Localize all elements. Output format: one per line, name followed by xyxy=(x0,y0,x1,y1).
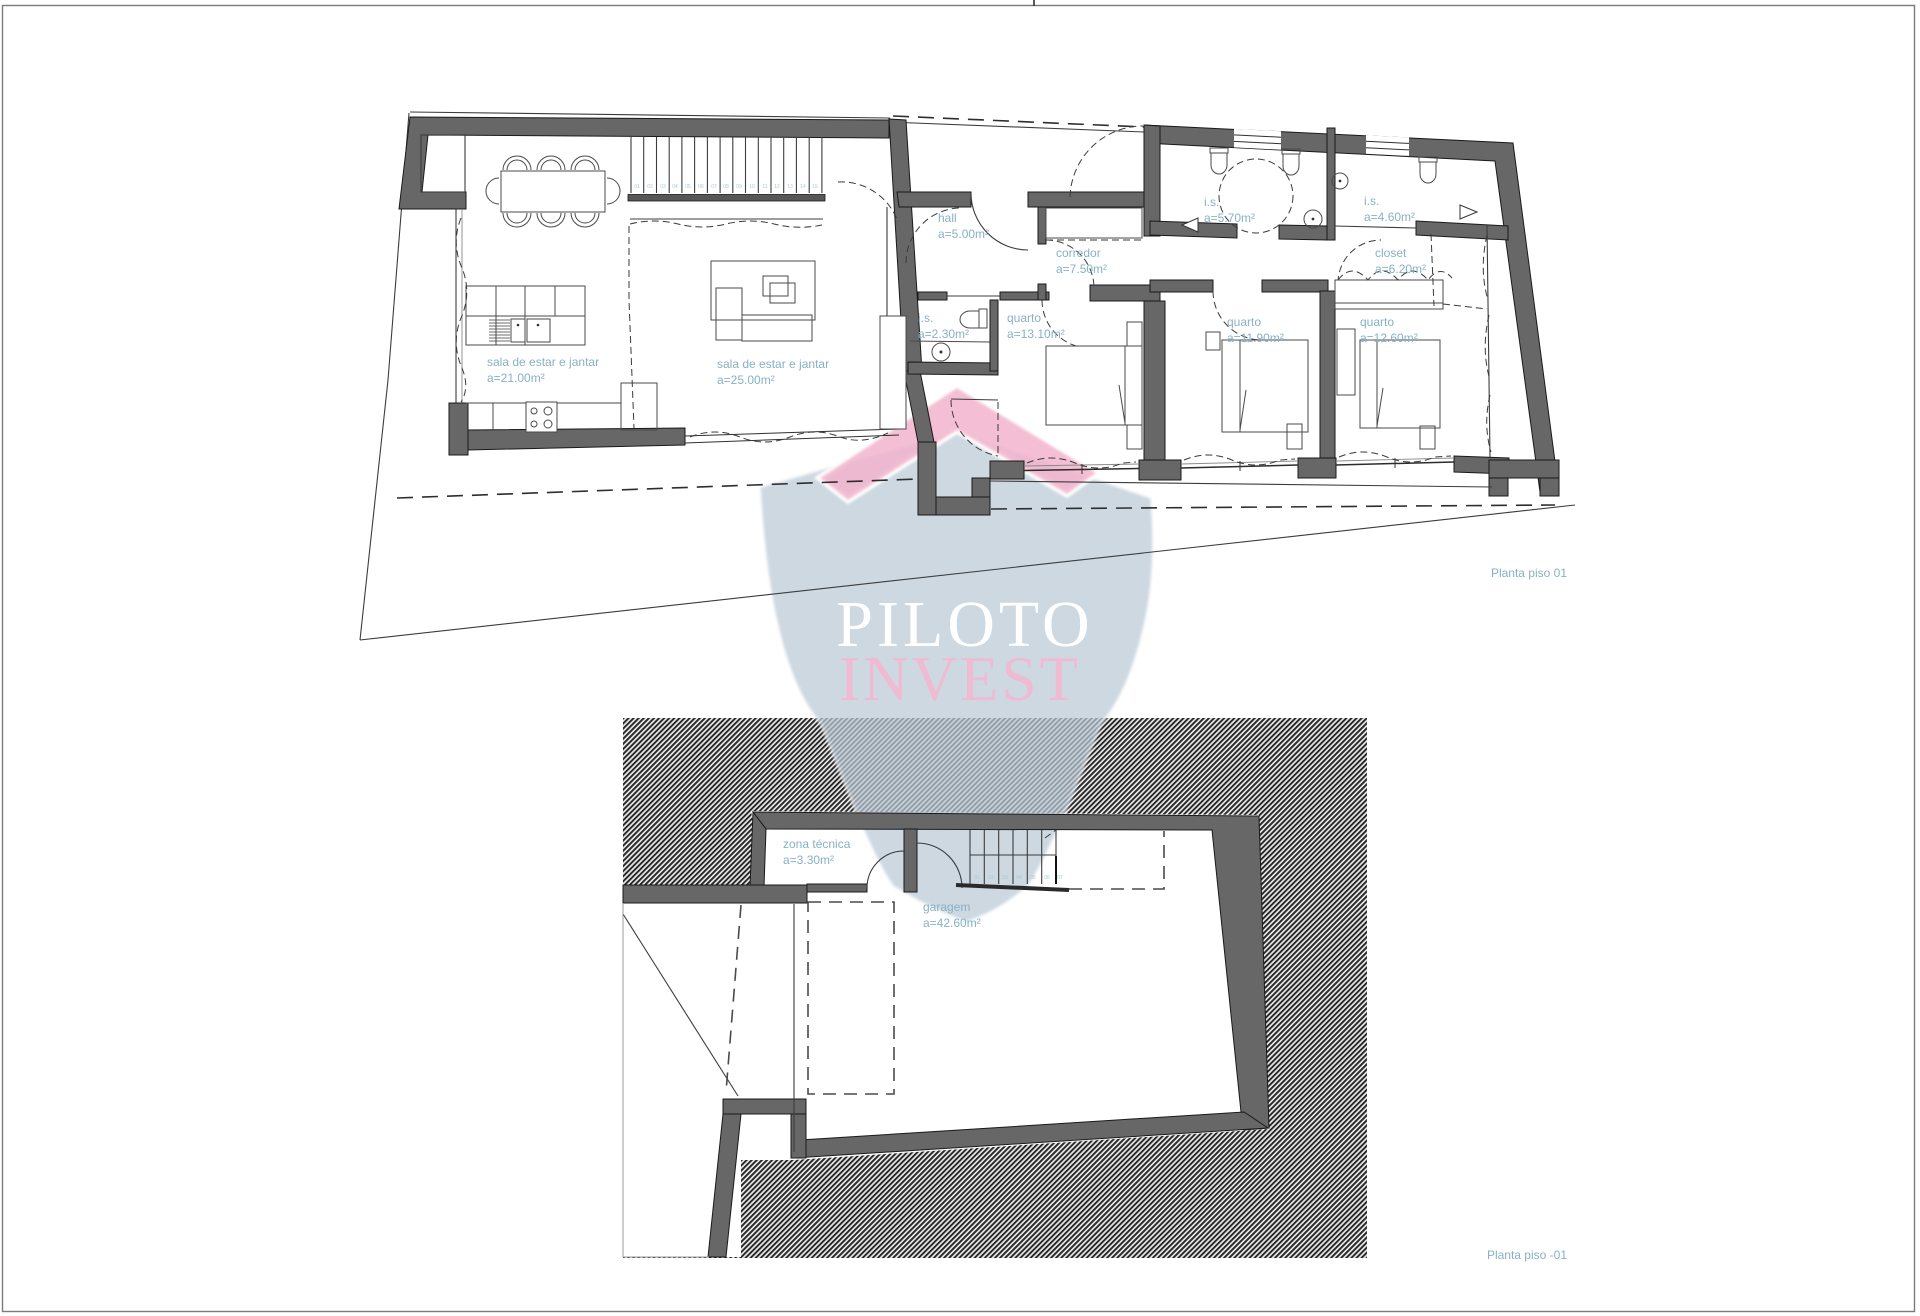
svg-text:INVEST: INVEST xyxy=(839,644,1081,714)
svg-text:09: 09 xyxy=(736,184,742,190)
svg-text:03: 03 xyxy=(1002,875,1008,881)
svg-text:04: 04 xyxy=(672,184,678,190)
svg-text:15: 15 xyxy=(812,184,818,190)
svg-text:quarto: quarto xyxy=(1227,315,1261,329)
svg-text:a=5.00m²: a=5.00m² xyxy=(938,227,989,241)
svg-text:05: 05 xyxy=(685,184,691,190)
svg-text:14: 14 xyxy=(800,184,806,190)
svg-text:zona técnica: zona técnica xyxy=(783,837,851,851)
svg-text:i.s.: i.s. xyxy=(1364,194,1379,208)
svg-text:closet: closet xyxy=(1375,246,1407,260)
svg-text:08: 08 xyxy=(723,184,729,190)
svg-text:07: 07 xyxy=(711,184,717,190)
svg-text:07: 07 xyxy=(1057,875,1063,881)
svg-text:02: 02 xyxy=(647,184,653,190)
svg-text:hall: hall xyxy=(938,211,957,225)
svg-text:i.s.: i.s. xyxy=(918,311,933,325)
svg-text:02: 02 xyxy=(988,875,994,881)
svg-text:a=25.00m²: a=25.00m² xyxy=(717,373,775,387)
svg-text:12: 12 xyxy=(774,184,780,190)
svg-text:01: 01 xyxy=(634,184,640,190)
svg-text:13: 13 xyxy=(787,184,793,190)
svg-text:a=5.70m²: a=5.70m² xyxy=(1204,211,1255,225)
svg-text:Planta piso -01: Planta piso -01 xyxy=(1487,1248,1567,1262)
svg-text:06: 06 xyxy=(698,184,704,190)
svg-text:a=7.50m²: a=7.50m² xyxy=(1056,262,1107,276)
svg-text:a=4.60m²: a=4.60m² xyxy=(1364,210,1415,224)
svg-text:a=6.20m²: a=6.20m² xyxy=(1375,262,1426,276)
svg-text:a=12.60m²: a=12.60m² xyxy=(1360,331,1418,345)
svg-text:sala de estar e jantar: sala de estar e jantar xyxy=(717,357,829,371)
svg-text:a=13.10m²: a=13.10m² xyxy=(1007,327,1065,341)
svg-text:quarto: quarto xyxy=(1360,315,1394,329)
svg-text:11: 11 xyxy=(762,184,767,190)
svg-text:a=2.30m²: a=2.30m² xyxy=(918,327,969,341)
svg-text:01: 01 xyxy=(974,875,980,881)
svg-text:sala de estar e jantar: sala de estar e jantar xyxy=(487,355,599,369)
svg-text:i.s.: i.s. xyxy=(1204,195,1219,209)
svg-text:04: 04 xyxy=(1016,875,1022,881)
svg-text:corredor: corredor xyxy=(1056,246,1101,260)
svg-text:a=42.60m²: a=42.60m² xyxy=(923,916,981,930)
svg-text:a=3.30m²: a=3.30m² xyxy=(783,853,834,867)
svg-text:quarto: quarto xyxy=(1007,311,1041,325)
svg-text:garagem: garagem xyxy=(923,900,970,914)
svg-text:10: 10 xyxy=(749,184,755,190)
svg-text:03: 03 xyxy=(660,184,666,190)
svg-text:06: 06 xyxy=(1044,875,1050,881)
svg-text:05: 05 xyxy=(1030,875,1036,881)
svg-text:Planta piso 01: Planta piso 01 xyxy=(1491,566,1567,580)
svg-text:a=11.90m²: a=11.90m² xyxy=(1227,331,1284,345)
svg-text:a=21.00m²: a=21.00m² xyxy=(487,371,545,385)
